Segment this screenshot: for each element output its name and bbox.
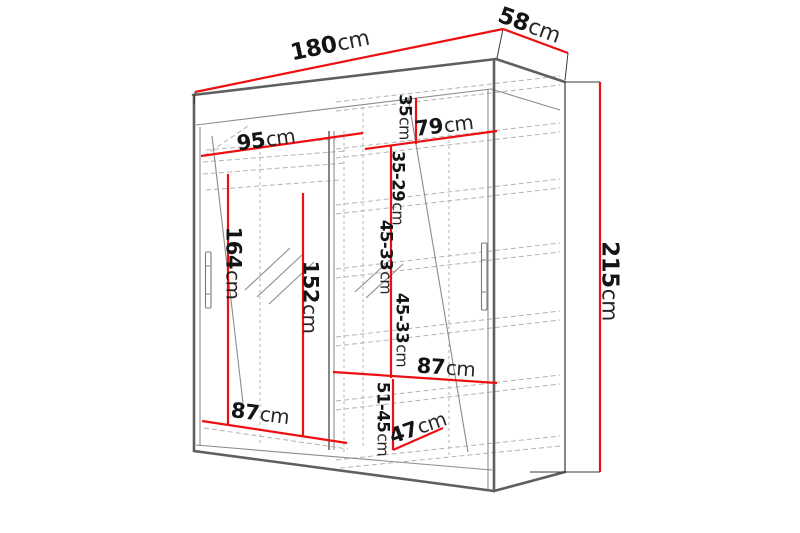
wardrobe-line-drawing <box>0 0 800 533</box>
dim-shelf-gap-35-29-label: 35-29cm <box>389 151 406 225</box>
dim-shelf-gap-45-33-lower-label: 45-33cm <box>393 293 410 367</box>
dim-height-label: 215cm <box>598 241 621 321</box>
dim-bottom-shelf-gap-label: 51-45cm <box>374 382 391 456</box>
left-door-handle <box>206 252 212 308</box>
dim-top-shelf-gap-label: 35cm <box>396 94 413 140</box>
right-door-handle <box>482 243 488 310</box>
dim-left-inner-height-label: 152cm <box>300 261 321 334</box>
wardrobe-dimension-diagram: 180cm 58cm 215cm 95cm 79cm 35cm 35-29cm … <box>0 0 800 533</box>
dim-right-shelf-width-label: 87cm <box>416 355 476 380</box>
dim-left-hanging-height-label: 164cm <box>223 227 244 300</box>
dim-shelf-gap-45-33-upper-label: 45-33cm <box>377 220 394 294</box>
